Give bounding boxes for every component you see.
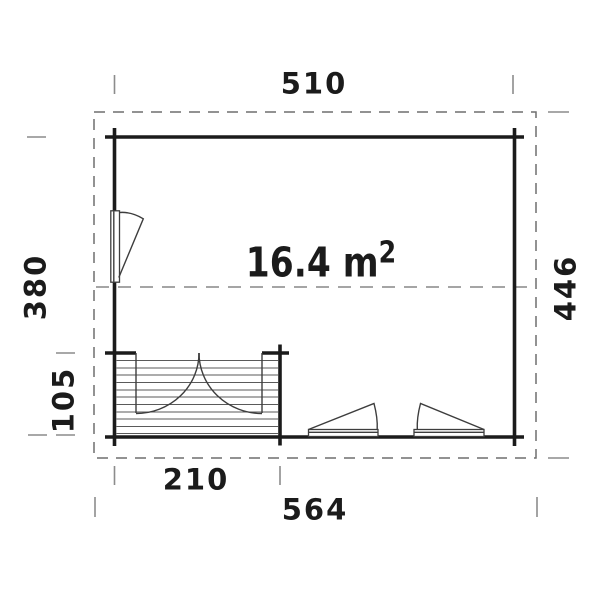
- window-bottom-right-frame: [414, 430, 484, 437]
- dimension-label-overall-depth: 446: [552, 255, 581, 322]
- window-bottom-left-tilt-symbol: [309, 404, 378, 430]
- dimension-label-terrace-depth: 105: [50, 367, 79, 434]
- terrace-deck-hatch: [117, 361, 279, 434]
- area-label: 16.4 m2: [246, 239, 396, 284]
- window-bottom-left-frame: [309, 430, 379, 437]
- window-left-frame: [111, 211, 120, 282]
- dimension-label-wall-depth: 380: [22, 254, 51, 321]
- dimension-ticks: [27, 75, 569, 517]
- window-left: [111, 211, 144, 282]
- area-value: 16.4 m: [246, 239, 379, 287]
- area-superscript: 2: [379, 236, 397, 271]
- window-left-tilt-symbol: [119, 212, 144, 277]
- floor-plan: 510 380 105 446 210 564 16.4 m2: [0, 0, 600, 600]
- window-bottom-right: [414, 404, 484, 437]
- window-bottom-right-tilt-symbol: [417, 404, 484, 430]
- dimension-label-overall-width: 564: [282, 496, 349, 525]
- dimension-label-terrace-width: 210: [163, 466, 230, 495]
- dimension-label-wall-width: 510: [281, 70, 348, 99]
- window-bottom-left: [309, 404, 379, 437]
